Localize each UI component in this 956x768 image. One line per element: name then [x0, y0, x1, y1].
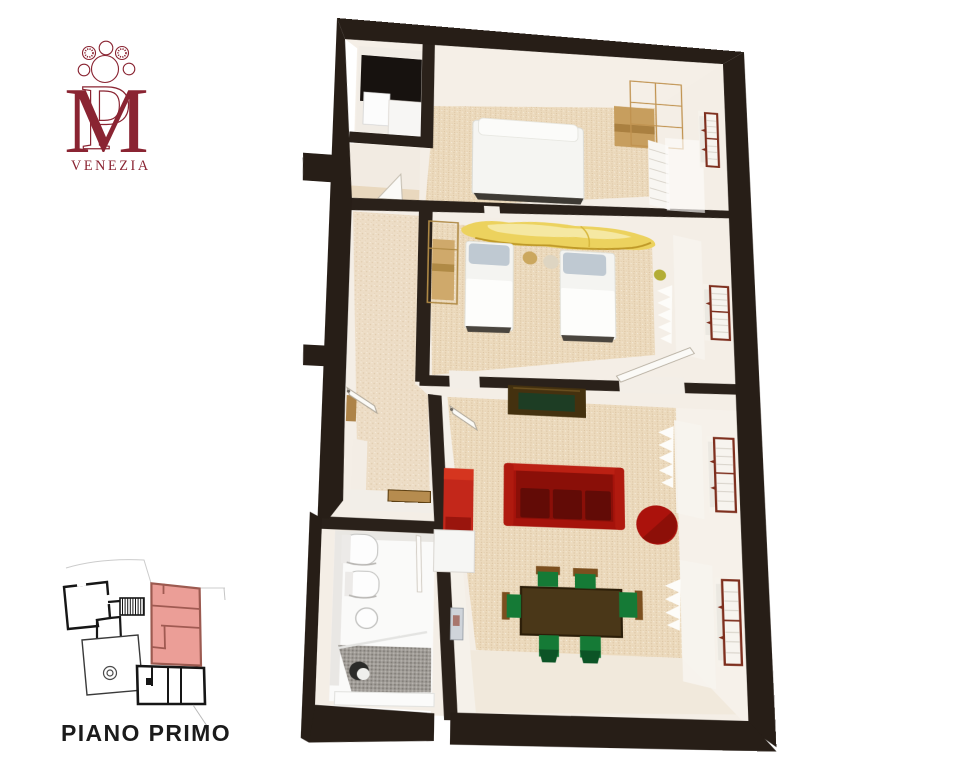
svg-text:VENEZIA: VENEZIA [71, 158, 151, 174]
